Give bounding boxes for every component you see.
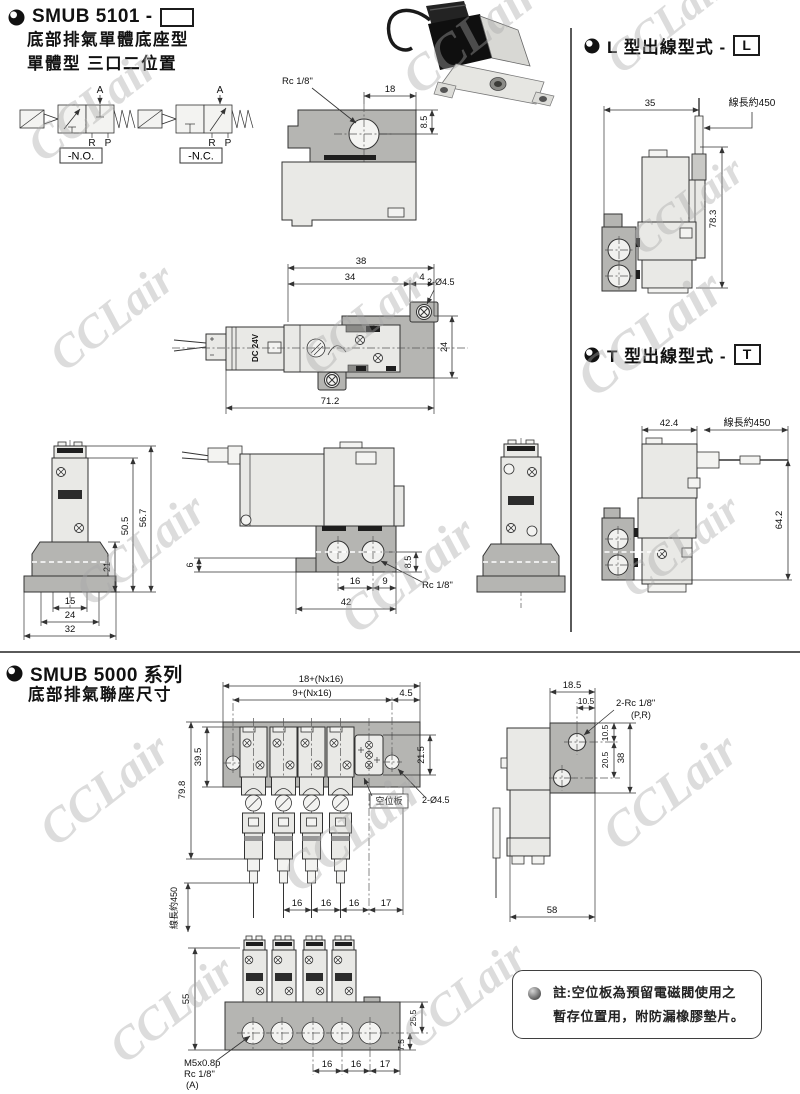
dim-pitch-17: 17 — [381, 898, 392, 909]
wire-length-label: 線長約450 — [729, 96, 776, 109]
dim-55: 55 — [181, 994, 192, 1005]
page-title: SMUB 5101 - — [32, 6, 153, 28]
dim-16: 16 — [350, 576, 361, 587]
section-bullet-icon — [6, 665, 23, 682]
dim-inner-pitch: 9+(Nx16) — [292, 688, 331, 699]
view-base-detail: 18 8.5 Rc 1/8" — [276, 70, 476, 240]
dim-56-7: 56.7 — [138, 509, 149, 528]
note-line-1: 註:空位板為預留電磁閥使用之 — [553, 981, 749, 1005]
symbol-normally-open: A R P -N.O. — [20, 85, 135, 163]
dim-71-2: 71.2 — [321, 396, 340, 407]
manifold-front-valves — [243, 936, 356, 1002]
manifold-valve-units — [240, 727, 354, 777]
normally-closed-label: -N.C. — [188, 151, 214, 163]
symbol-normally-closed: A R P -N.C. — [138, 85, 253, 163]
dim-pitch-16: 16 — [322, 1059, 333, 1070]
wire-length-label: 線長約450 — [724, 416, 771, 429]
dim-pitch-17: 17 — [380, 1059, 391, 1070]
view-manifold-front: 55 25.5 7.5 16 16 17 M5x0.8p Rc 1/8" (A) — [174, 933, 480, 1094]
port-label-a: A — [97, 85, 104, 96]
dim-42-4: 42.4 — [660, 418, 679, 429]
port-label-r: R — [208, 138, 215, 149]
dim-38: 38 — [356, 256, 367, 267]
view-rear — [474, 436, 574, 638]
normally-open-label: -N.O. — [68, 151, 94, 163]
dim-24: 24 — [65, 610, 76, 621]
dim-34: 34 — [345, 272, 356, 283]
spare-plate-label: 空位板 — [375, 795, 402, 806]
dim-outer-pitch: 18+(Nx16) — [299, 674, 344, 685]
dim-pitch-16: 16 — [349, 898, 360, 909]
rc-ports-label: 2-Rc 1/8" — [616, 698, 655, 709]
section-bullet-icon — [584, 38, 600, 54]
dim-9: 9 — [382, 576, 387, 587]
rc-port-label: Rc 1/8" — [422, 580, 453, 591]
view-side: 6 16 9 42 8.5 Rc 1/8" — [180, 436, 480, 638]
series-title-row: SMUB 5101 - — [8, 6, 194, 28]
dim-pitch-16: 16 — [321, 898, 332, 909]
dim-15: 15 — [65, 596, 76, 607]
manifold-subtitle: 底部排氣聯座尺寸 — [28, 684, 172, 708]
port-label-r: R — [88, 138, 95, 149]
dim-78-3: 78.3 — [708, 210, 719, 229]
note-line-2: 暫存位置用，附防漏橡膠墊片。 — [553, 1005, 749, 1029]
thread-label-m5: M5x0.8p — [184, 1058, 220, 1069]
section-bullet-icon — [584, 347, 600, 363]
view-l-type: 35 線長約450 78.3 — [592, 86, 800, 316]
mount-holes-label: 2-Ø4.5 — [422, 795, 450, 805]
dim-8-5: 8.5 — [419, 116, 429, 129]
t-type-heading-row: T 型出線型式 - T — [584, 342, 761, 367]
dim-50-5: 50.5 — [120, 517, 131, 536]
t-type-heading: T 型出線型式 - — [607, 342, 727, 367]
dim-4-5: 4.5 — [399, 688, 412, 699]
dim-39-5: 39.5 — [193, 748, 204, 767]
dim-pitch-16: 16 — [351, 1059, 362, 1070]
section-bullet-icon — [8, 9, 25, 26]
l-type-badge: L — [733, 35, 760, 56]
manifold-title-row: SMUB 5000 系列 — [6, 660, 183, 687]
dim-21: 21 — [102, 562, 112, 572]
view-front: 21 50.5 56.7 15 24 32 — [14, 438, 172, 644]
wire-length-label: 線長約450 — [168, 887, 179, 929]
dim-25-5: 25.5 — [408, 1009, 418, 1026]
dim-10-5-top: 10.5 — [578, 696, 595, 706]
catalog-page: CCLair CCLair CCLair CCLair CCLair CCLai… — [0, 0, 800, 1094]
dim-18-5: 18.5 — [563, 680, 582, 691]
rc-ports-sublabel: (P,R) — [631, 710, 651, 720]
t-type-badge: T — [734, 344, 761, 365]
dim-32: 32 — [65, 624, 76, 635]
manifold-title: SMUB 5000 系列 — [30, 660, 183, 687]
rc-port-label: Rc 1/8" — [282, 76, 313, 87]
dim-4: 4 — [419, 272, 424, 283]
dim-18: 18 — [385, 84, 396, 95]
dim-38: 38 — [616, 753, 627, 764]
note-box: 註:空位板為預留電磁閥使用之 暫存位置用，附防漏橡膠墊片。 — [512, 970, 762, 1039]
thread-label-rc: Rc 1/8" — [184, 1069, 215, 1080]
dim-10-5: 10.5 — [600, 724, 610, 741]
model-option-box — [160, 8, 194, 27]
dim-8-5: 8.5 — [403, 556, 413, 569]
dim-20-5: 20.5 — [600, 751, 610, 768]
port-label-p: P — [105, 138, 112, 149]
dim-pitch-16: 16 — [292, 898, 303, 909]
watermark-text: CCLair — [39, 252, 184, 382]
dim-58: 58 — [547, 905, 558, 916]
watermark-text: CCLair — [29, 722, 181, 857]
page-subtitle-2: 單體型 三口二位置 — [27, 53, 177, 77]
column-divider — [570, 28, 572, 632]
dim-24: 24 — [439, 342, 449, 352]
dim-35: 35 — [645, 98, 656, 109]
thread-label-port-a: (A) — [186, 1080, 199, 1091]
note-bullet-icon — [528, 987, 541, 1000]
dim-64-2: 64.2 — [774, 511, 785, 530]
dim-79-8: 79.8 — [177, 781, 188, 800]
port-label-a: A — [217, 85, 224, 96]
dim-42: 42 — [341, 597, 352, 608]
dim-7-5: 7.5 — [396, 1039, 406, 1051]
view-plan: DC 24V 38 34 4 2-Ø4.5 24 71.2 — [170, 252, 472, 422]
dim-21-5: 21.5 — [416, 746, 426, 764]
l-type-heading-row: L 型出線型式 - L — [584, 33, 760, 58]
section-divider — [0, 651, 800, 653]
l-type-heading: L 型出線型式 - — [607, 33, 726, 58]
view-manifold-plan: 18+(Nx16) 9+(Nx16) 4.5 39.5 79.8 線長約450 … — [164, 670, 470, 944]
valve-symbols-diagram: A R P -N.O. A R P -N.C. — [18, 86, 248, 164]
page-subtitle-1: 底部排氣單體底座型 — [27, 29, 189, 53]
dim-6: 6 — [185, 562, 195, 567]
mount-holes-label: 2-Ø4.5 — [427, 277, 455, 287]
view-t-type: 42.4 線長約450 64.2 — [592, 412, 800, 614]
port-label-p: P — [225, 138, 232, 149]
view-manifold-side: 18.5 10.5 2-Rc 1/8" (P,R) 10.5 20.5 38 5… — [486, 670, 771, 940]
